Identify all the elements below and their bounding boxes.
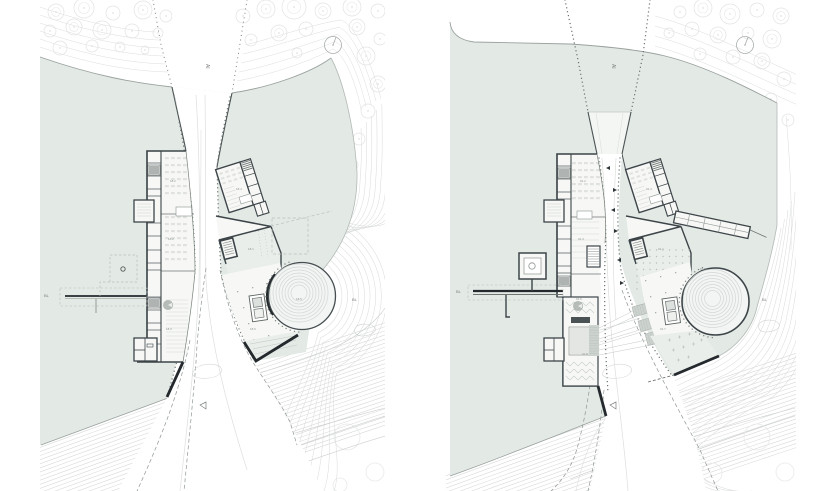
svg-text:18.2: 18.2 — [170, 179, 176, 183]
svg-text:Al: Al — [610, 64, 616, 68]
svg-text:BL: BL — [456, 289, 462, 294]
svg-text:01.6: 01.6 — [576, 297, 582, 301]
svg-text:18.2: 18.2 — [168, 237, 174, 241]
svg-text:18.6: 18.6 — [250, 327, 256, 331]
svg-text:01.7: 01.7 — [660, 327, 666, 331]
svg-text:18.3: 18.3 — [166, 327, 172, 331]
svg-text:BL: BL — [352, 297, 358, 302]
svg-text:01.1: 01.1 — [658, 247, 664, 251]
svg-text:18.4: 18.4 — [236, 187, 242, 191]
svg-text:Al: Al — [204, 64, 210, 68]
svg-text:01.3: 01.3 — [578, 237, 584, 241]
svg-text:BL: BL — [762, 297, 768, 302]
svg-text:01.5: 01.5 — [700, 267, 706, 271]
svg-text:01.2: 01.2 — [580, 179, 586, 183]
svg-text:18.5: 18.5 — [296, 297, 302, 301]
svg-text:BL: BL — [44, 293, 50, 298]
svg-text:01.8: 01.8 — [582, 352, 588, 356]
svg-text:18.1: 18.1 — [248, 247, 254, 251]
svg-text:01.4: 01.4 — [646, 187, 652, 191]
